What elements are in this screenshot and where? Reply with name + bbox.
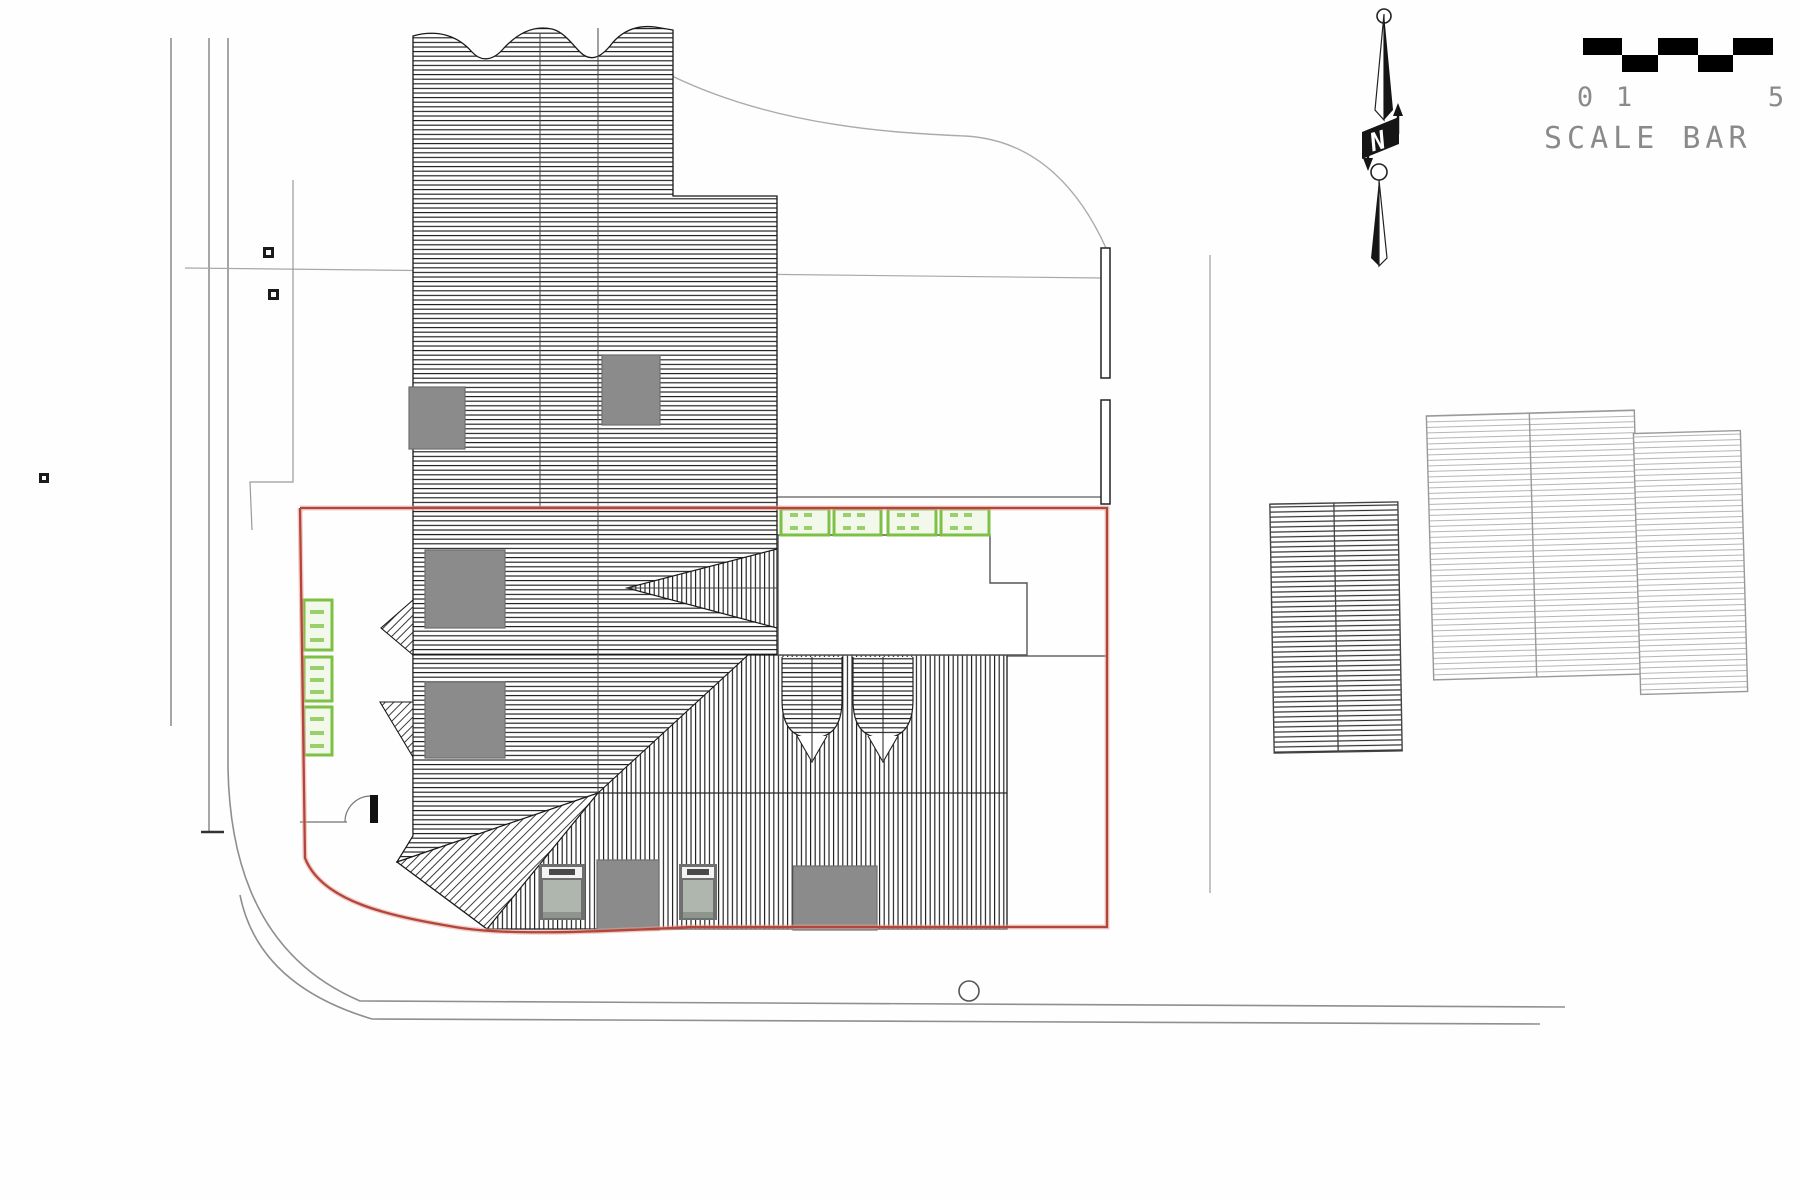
survey-marker-center xyxy=(42,476,46,480)
north-arrow-bottom-ring xyxy=(1371,164,1387,180)
wall-segment xyxy=(1101,248,1110,378)
green-rooflight-icon xyxy=(304,657,332,701)
site-plan-canvas: N 0 1 5 SCALE BAR xyxy=(0,0,1800,1200)
outbuilding-block xyxy=(1108,443,1230,655)
scale-tick-1: 1 xyxy=(1616,82,1632,113)
scale-tick-5: 5 xyxy=(1768,82,1784,113)
velux-unit-icon xyxy=(679,864,717,920)
north-needle-upper-solid xyxy=(1384,14,1393,120)
north-needle-upper-outline xyxy=(1375,14,1384,120)
green-rooflight-icon xyxy=(781,509,829,535)
scale-bar-label: SCALE BAR xyxy=(1544,121,1752,156)
skylight-icon xyxy=(597,860,659,930)
scale-bar-block xyxy=(1622,55,1658,72)
north-arrow: N xyxy=(1362,9,1403,266)
green-rooflight-icon xyxy=(304,707,332,755)
north-needle-lower-outline xyxy=(1379,180,1387,266)
velux-unit-icon xyxy=(539,864,585,920)
scale-bar-block xyxy=(1583,38,1622,55)
survey-marker-center xyxy=(266,250,271,255)
north-needle-lower-solid xyxy=(1371,180,1379,266)
green-rooflight-icon xyxy=(304,600,332,650)
skylight-icon xyxy=(409,387,465,449)
scale-tick-0: 0 xyxy=(1577,82,1593,113)
skylight-icon xyxy=(425,550,505,628)
green-rooflight-icon xyxy=(941,509,989,535)
wall-segment xyxy=(1101,400,1110,504)
green-rooflight-icon xyxy=(888,509,936,535)
green-rooflights-left xyxy=(304,600,332,755)
porch-roof-upper xyxy=(381,600,413,655)
site-plan-drawing: N 0 1 5 SCALE BAR xyxy=(0,0,1800,1200)
neighbour-building-right xyxy=(1633,431,1747,695)
roof-north-wing xyxy=(413,27,777,508)
manhole-circle-icon xyxy=(959,981,979,1001)
survey-line-step xyxy=(250,180,293,530)
neighbour-building-left xyxy=(1270,502,1402,753)
skylight-icon xyxy=(425,682,505,758)
green-rooflight-icon xyxy=(834,509,881,535)
scale-bar: 0 1 5 SCALE BAR xyxy=(1544,38,1784,156)
skylight-icon xyxy=(793,866,877,930)
main-building xyxy=(345,27,1007,929)
green-rooflights-top xyxy=(781,509,989,535)
skylight-icon xyxy=(602,355,660,425)
scale-bar-block xyxy=(1733,38,1773,55)
door-swing-arc xyxy=(345,796,370,822)
scale-bar-block xyxy=(1698,55,1733,72)
door-leaf xyxy=(370,795,378,823)
porch-roof-lower xyxy=(380,702,413,757)
survey-markers xyxy=(39,247,279,483)
flat-roof-block xyxy=(778,535,1027,655)
neighbour-building-middle xyxy=(1426,410,1641,680)
scale-bar-block xyxy=(1658,38,1698,55)
survey-marker-center xyxy=(271,292,276,297)
boundary-wall-segments xyxy=(1101,248,1110,504)
north-mini-arrowhead-up xyxy=(1393,103,1403,116)
